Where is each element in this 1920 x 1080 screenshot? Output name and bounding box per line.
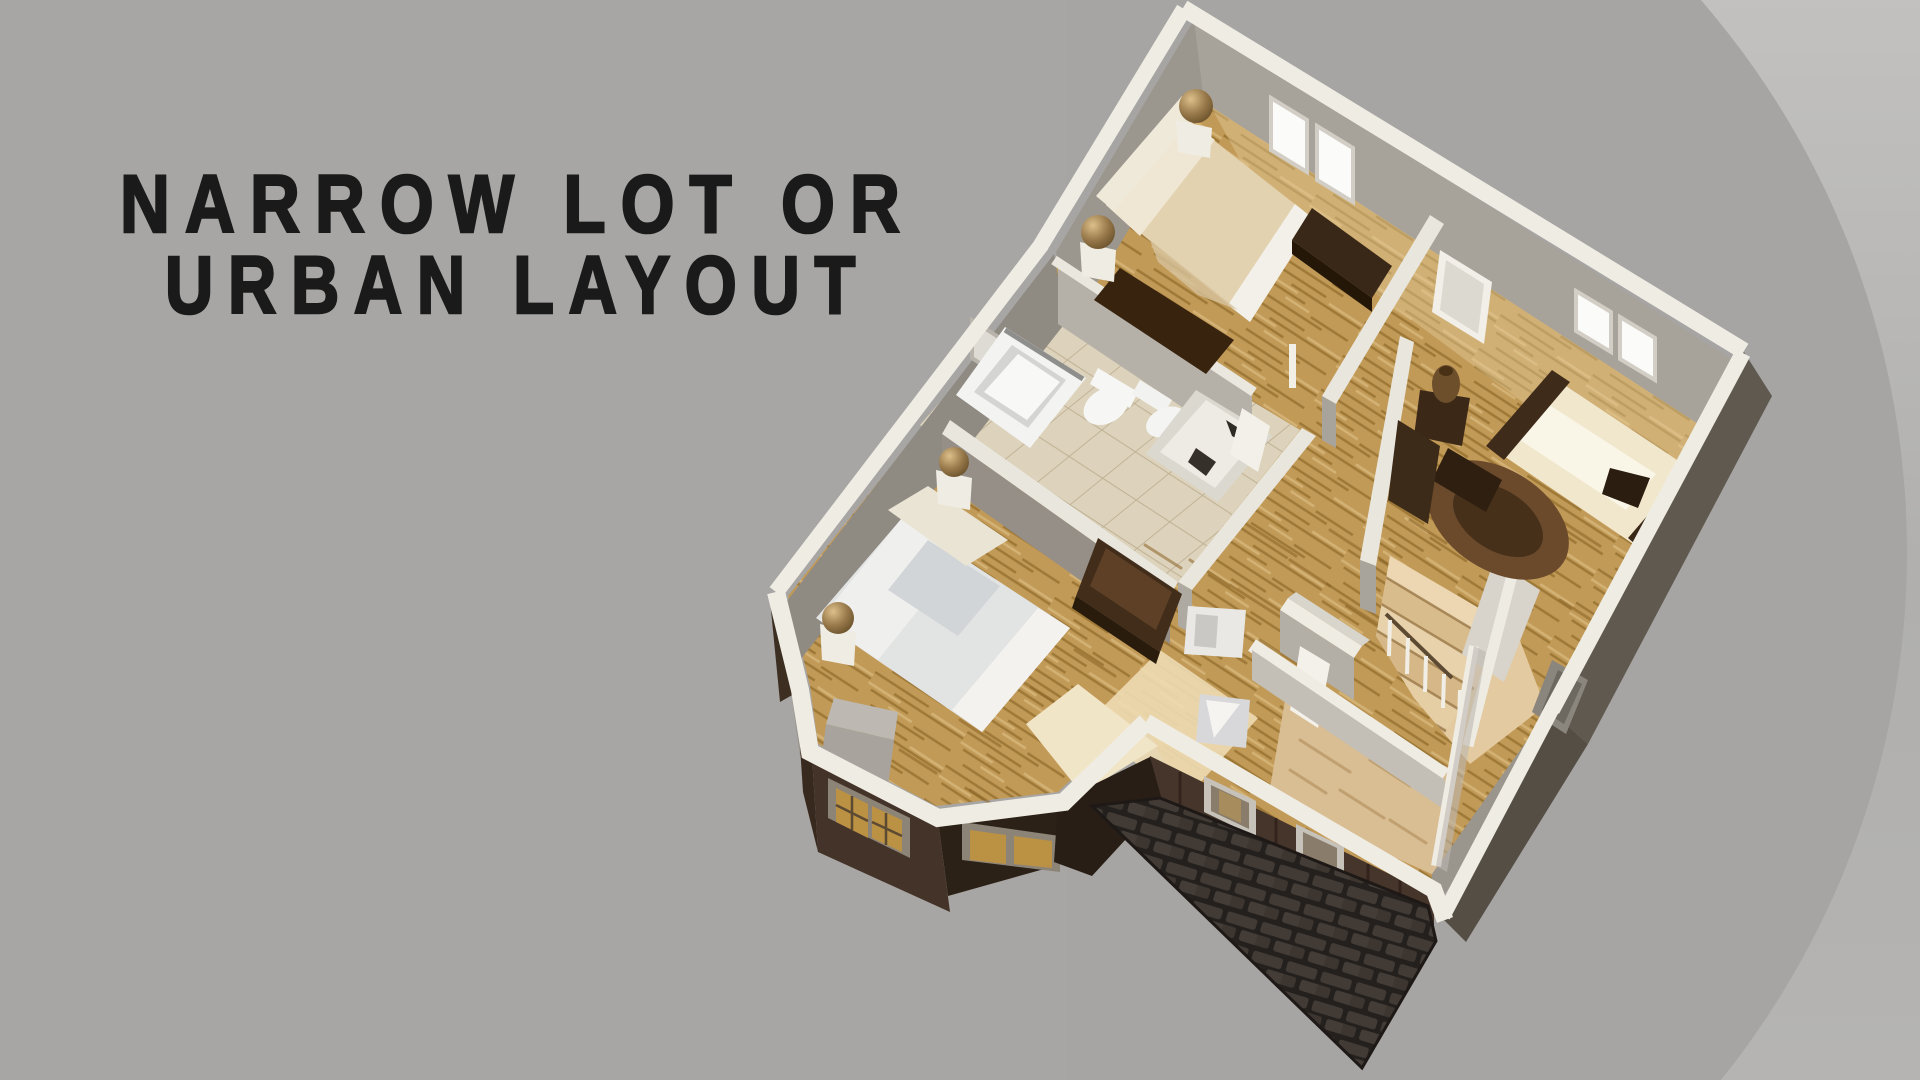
svg-text:URBAN LAYOUT: URBAN LAYOUT <box>165 240 870 331</box>
svg-text:NARROW LOT OR: NARROW LOT OR <box>120 159 915 250</box>
